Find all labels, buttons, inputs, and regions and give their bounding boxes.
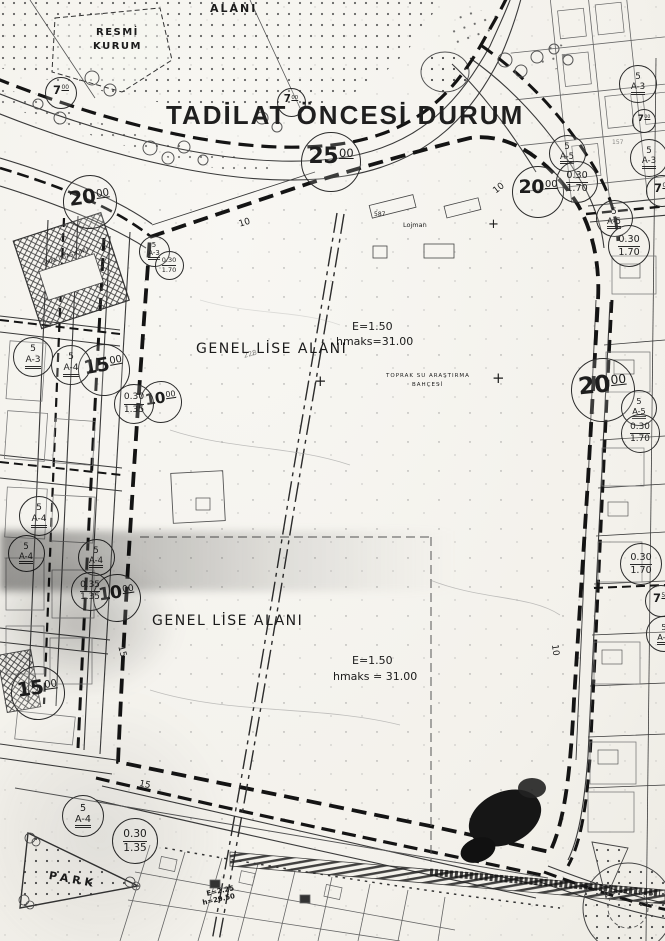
map-label: GENEL LİSE ALANI — [152, 614, 303, 628]
map-label: 10 — [238, 218, 252, 230]
map-label: + — [488, 218, 499, 231]
map-label: + — [314, 374, 327, 389]
ratio-circle: 0.301.70 — [155, 251, 184, 280]
map-label: 10 — [492, 182, 507, 196]
map-label: E=1.50 — [352, 321, 393, 332]
map-label: 10 — [549, 644, 559, 656]
width-circle: 700 — [45, 77, 77, 109]
width-circle: 1500 — [8, 663, 69, 724]
width-circle: 2000 — [60, 172, 121, 233]
zoning-circle: 5A-3 — [630, 139, 665, 177]
map-label: 15 — [138, 780, 151, 791]
map-label: ALANI — [210, 3, 257, 14]
map-label: GENEL LİSE ALANI — [196, 342, 347, 356]
zoning-circle: 5A-3 — [619, 65, 657, 103]
map-label: BAHÇESİ — [412, 383, 443, 389]
zoning-circle: 5A-4 — [51, 345, 91, 385]
ratio-circle: 0.351.35 — [71, 572, 110, 611]
zoning-circle: 5A-5 — [646, 616, 665, 652]
map-title: TADİLAT ÖNCESİ DURUM — [166, 100, 524, 131]
scanned-zoning-map: TADİLAT ÖNCESİ DURUM ALANIRESMİKURUMGENE… — [0, 0, 665, 941]
map-annotations: ALANIRESMİKURUMGENEL LİSE ALANIE=1.50hma… — [0, 0, 665, 941]
width-circle: 700 — [632, 109, 656, 133]
zoning-circle: 5A-4 — [8, 535, 45, 572]
ratio-circle: 0.301.70 — [556, 161, 598, 203]
map-label: TOPRAK SU ARAŞTIRMA — [386, 374, 470, 380]
zoning-circle: 5A-3 — [13, 337, 53, 377]
map-label: KURUM — [93, 42, 142, 52]
ratio-circle: 0.301.70 — [620, 543, 662, 585]
width-circle: 700 — [646, 175, 665, 207]
map-label: PARK — [48, 870, 98, 889]
width-circle: 2000 — [512, 166, 564, 218]
map-label: hmaks=31.00 — [336, 336, 413, 347]
ratio-circle: 0.301.35 — [112, 818, 158, 864]
map-label: RESMİ — [96, 28, 139, 38]
width-circle: 750 — [645, 585, 665, 617]
width-circle: 2500 — [301, 132, 361, 192]
ratio-circle: 0.301.70 — [621, 414, 660, 453]
map-label: 157 — [612, 140, 623, 146]
zoning-circle: 5A-4 — [62, 795, 104, 837]
map-label: 587 — [374, 212, 385, 218]
zoning-circle: 5A-4 — [19, 496, 59, 536]
zoning-circle: 5A-4 — [78, 539, 115, 576]
map-label: E=1.50 — [352, 655, 393, 666]
ratio-circle: 0.301.70 — [608, 225, 650, 267]
map-label: Lojman — [403, 222, 427, 229]
ratio-circle: 0.301.35 — [114, 384, 154, 424]
map-label: 15 — [115, 645, 127, 658]
map-label: + — [492, 371, 505, 386]
map-label: hmaks = 31.00 — [333, 671, 417, 682]
map-label: 228 — [243, 350, 258, 360]
map-label: İMAL İSTASYONU — [44, 248, 89, 267]
